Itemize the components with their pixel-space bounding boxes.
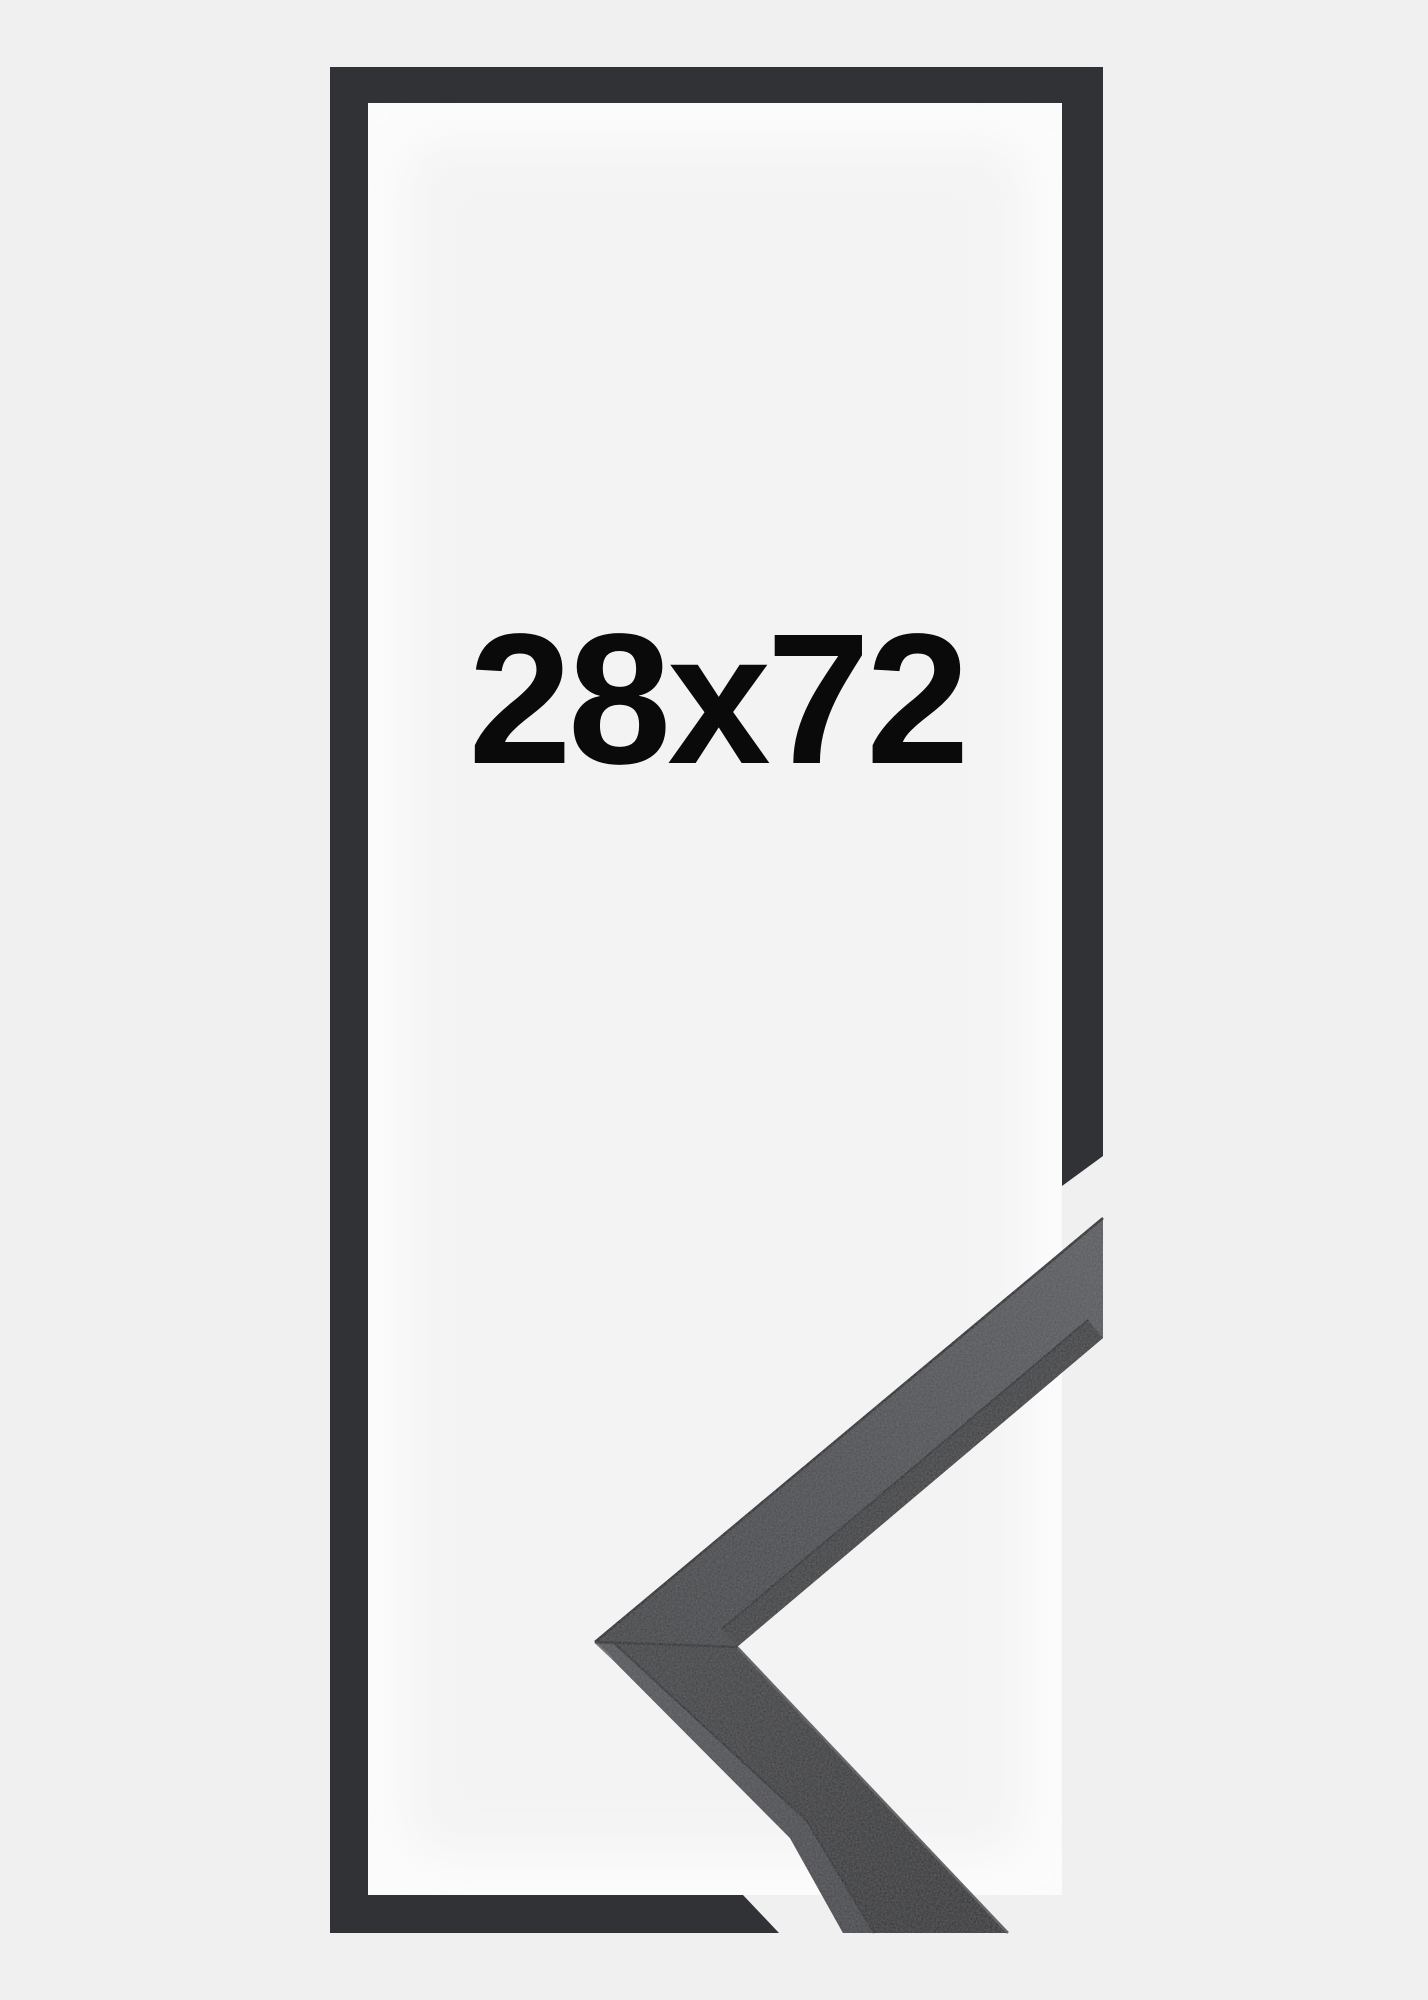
frame-product-graphic: 28x72 <box>0 0 1428 2000</box>
product-image: 28x72 <box>0 0 1428 2000</box>
size-label: 28x72 <box>468 596 965 803</box>
